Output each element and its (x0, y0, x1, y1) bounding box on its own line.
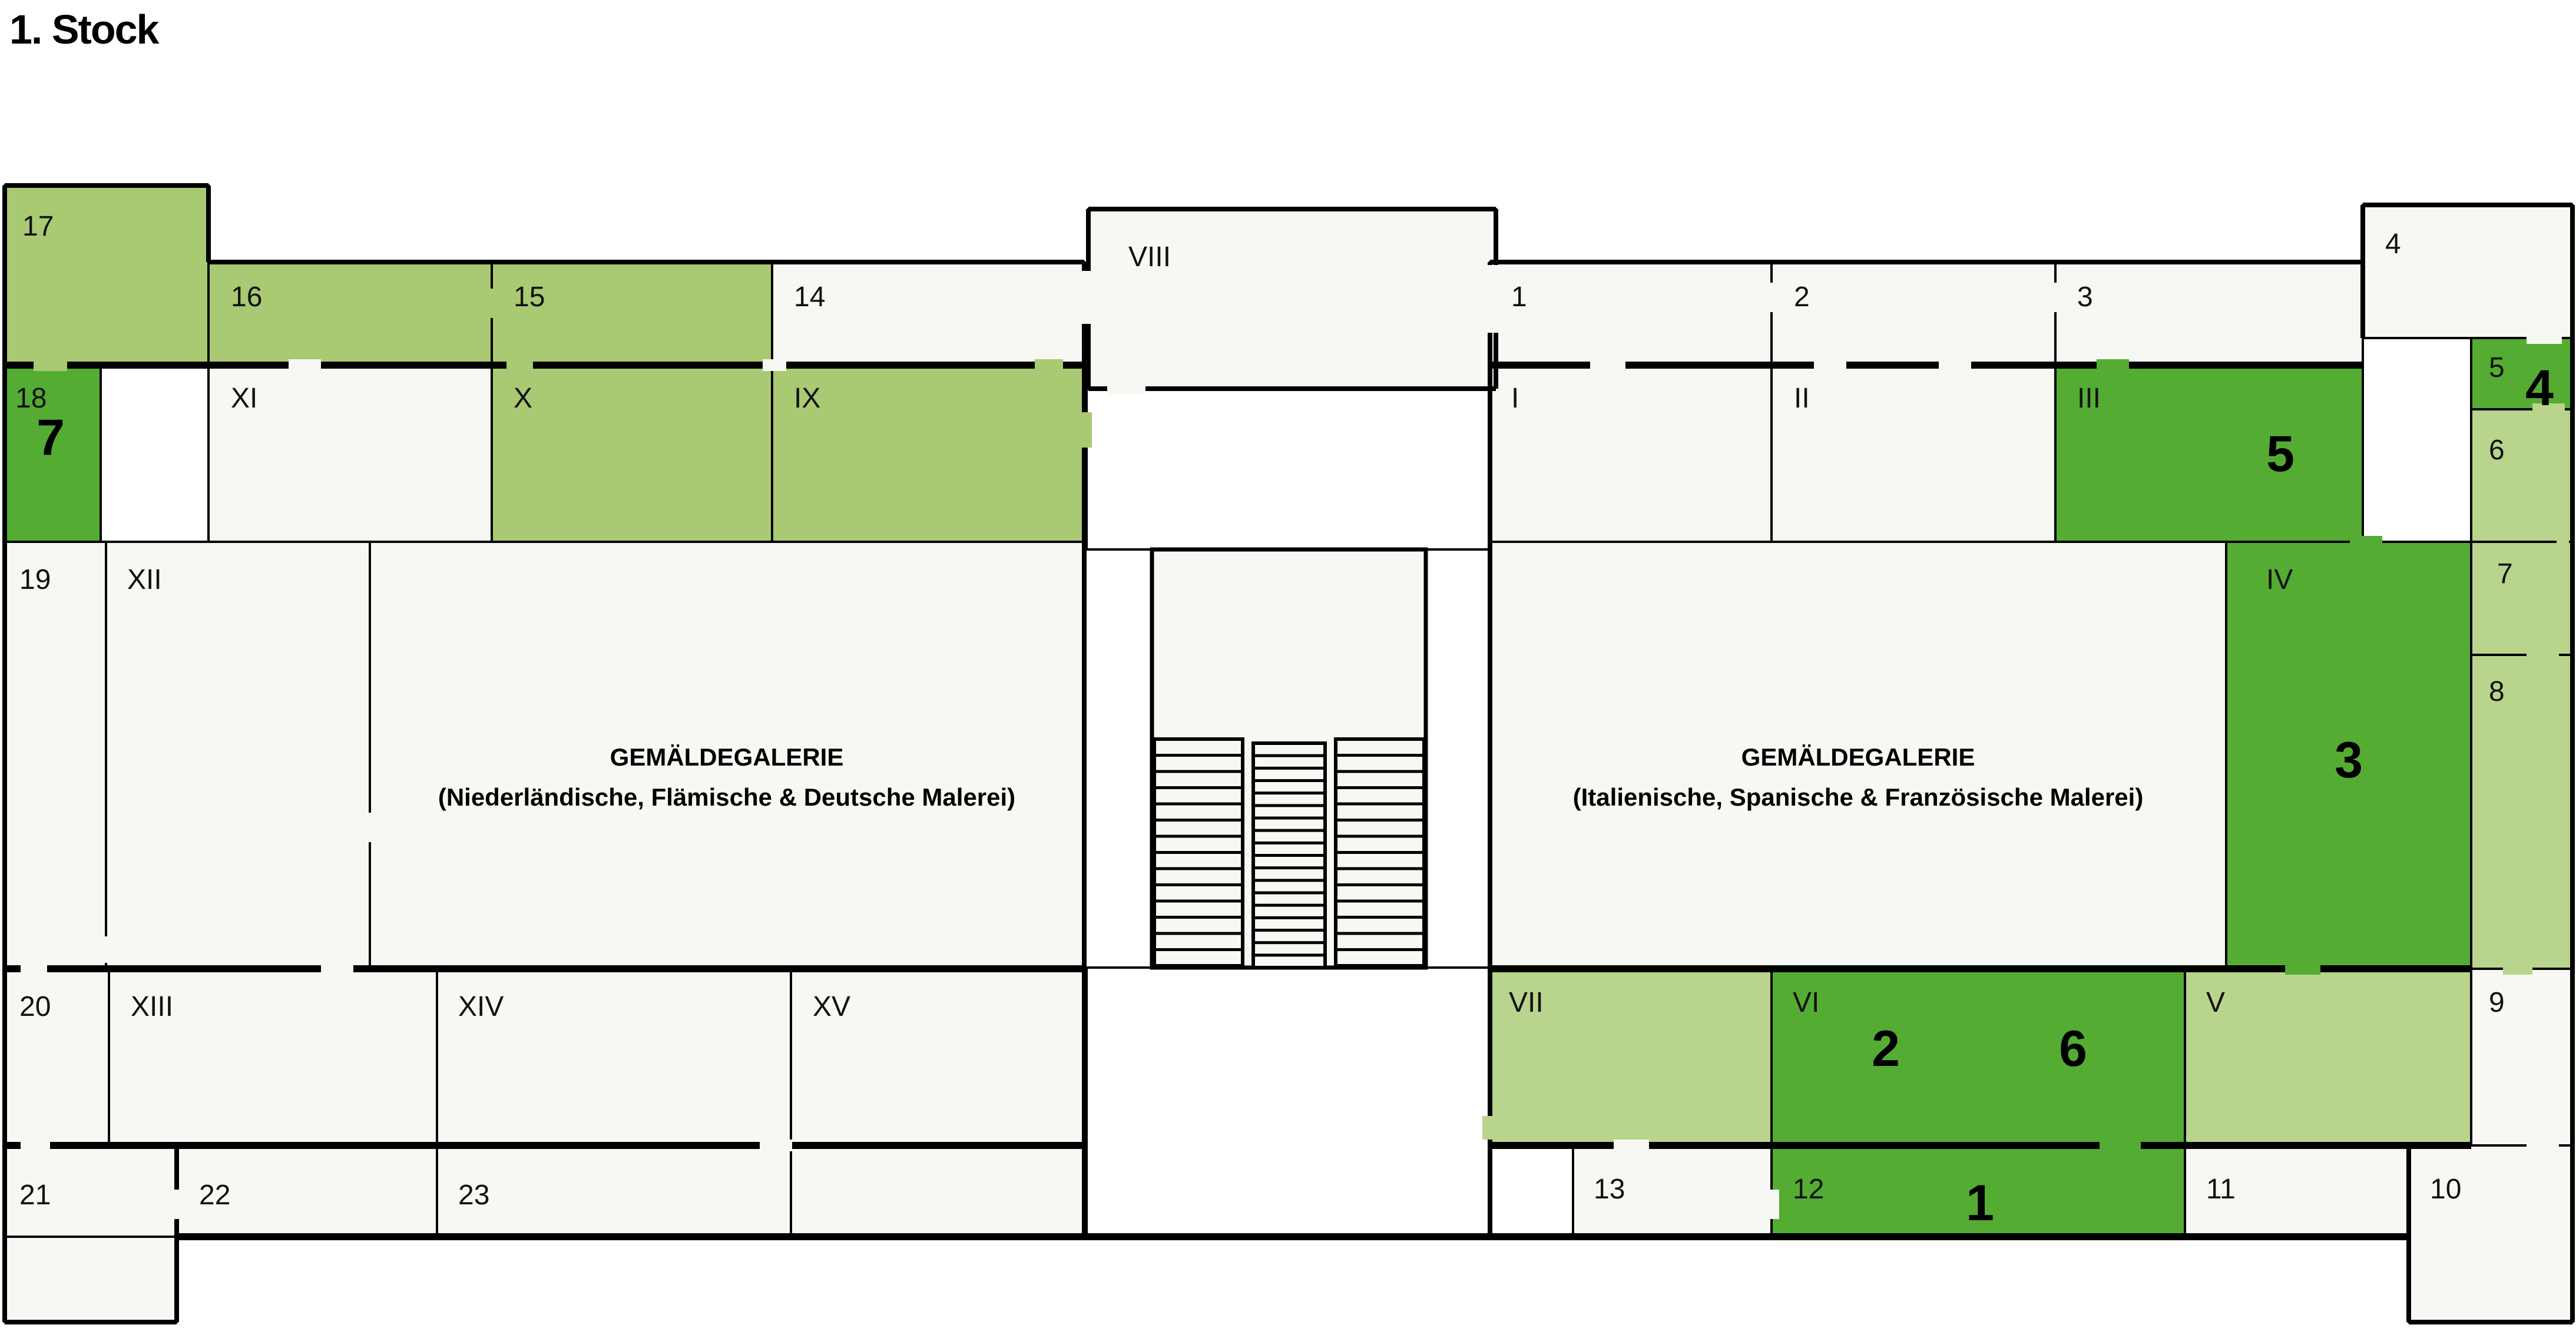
room-19-label: 19 (19, 564, 51, 595)
room-box-bottom-left (5, 1237, 177, 1322)
gallery-left-subtitle: (Niederländische, Flämische & Deutsche M… (438, 783, 1015, 811)
room-13-label: 13 (1594, 1174, 1625, 1205)
room-XIV-label: XIV (458, 991, 504, 1022)
room-2 (1772, 262, 2055, 365)
room-V (2185, 969, 2471, 1145)
room-9-label: 9 (2489, 987, 2505, 1018)
room-III-label: III (2077, 383, 2101, 414)
room-5r-label: 5 (2489, 352, 2505, 383)
room-15 (492, 262, 772, 365)
room-7r (2471, 542, 2572, 655)
room-11-label: 11 (2206, 1174, 2236, 1205)
room-I (1490, 365, 1772, 542)
room-12-label: 12 (1793, 1174, 1824, 1205)
room-row2-gap-right (2363, 338, 2471, 542)
room-19 (5, 542, 106, 969)
highlight-number-2: 2 (1872, 1021, 1900, 1077)
room-XIII-label: XIII (131, 991, 173, 1022)
room-2-label: 2 (1794, 282, 1810, 313)
gallery-left-title: GEMÄLDEGALERIE (610, 743, 844, 771)
room-VII-label: VII (1509, 987, 1544, 1018)
room-14 (772, 262, 1084, 365)
room-3-label: 3 (2077, 282, 2093, 313)
room-8r-label: 8 (2489, 676, 2505, 707)
gallery-right-subtitle: (Italienische, Spanische & Französische … (1573, 783, 2144, 811)
room-XI-label: XI (231, 383, 257, 414)
room-VIII (1088, 209, 1496, 389)
room-1-label: 1 (1511, 282, 1527, 313)
room-VIII-label: VIII (1128, 241, 1171, 273)
room-7r-label: 7 (2497, 558, 2513, 590)
room-XV-label: XV (813, 991, 850, 1022)
room-XII-label: XII (127, 564, 162, 595)
highlight-number-5: 5 (2266, 426, 2294, 482)
room-6r-label: 6 (2489, 435, 2505, 466)
floor-plan-svg: 17161514187XIXIX19XII20XIIIXIVXV212223VI… (0, 0, 2576, 1328)
room-21-label: 21 (19, 1180, 51, 1211)
room-15-label: 15 (514, 282, 545, 313)
highlight-number-6: 6 (2059, 1021, 2087, 1077)
room-XII (106, 542, 370, 969)
room-14-label: 14 (794, 282, 825, 313)
room-5r (2471, 338, 2572, 409)
room-shaft-mid (1087, 389, 1490, 549)
room-V-label: V (2206, 987, 2225, 1018)
room-6r (2471, 409, 2572, 542)
room-VI-label: VI (1793, 987, 1819, 1018)
room-10 (2409, 1145, 2572, 1322)
room-II-label: II (1794, 383, 1810, 414)
room-16-label: 16 (231, 282, 262, 313)
room-17-label: 17 (22, 211, 54, 242)
room-shaft-low (1087, 968, 1490, 1237)
highlight-number-3: 3 (2335, 732, 2363, 789)
staircase (1152, 549, 1426, 968)
gallery-right-title: GEMÄLDEGALERIE (1741, 743, 1975, 771)
room-VI (1772, 969, 2185, 1145)
room-III (2055, 365, 2363, 542)
room-room-23-right (791, 1145, 1084, 1237)
room-IV-label: IV (2266, 564, 2293, 595)
room-23 (437, 1145, 791, 1237)
highlight-number-7: 7 (37, 409, 65, 466)
room-23-label: 23 (458, 1180, 489, 1211)
room-3 (2055, 262, 2363, 365)
room-II (1772, 365, 2055, 542)
room-9 (2471, 969, 2572, 1145)
floor-plan: 1. Stock 17161514187XIXIX19XII20XIIIXIVX… (0, 0, 2576, 1328)
room-16 (208, 262, 492, 365)
room-row5-gap (1490, 1145, 1573, 1237)
room-row2-gap-left (101, 365, 208, 542)
highlight-number-4: 4 (2525, 360, 2554, 416)
room-X (492, 365, 772, 542)
room-4-label: 4 (2385, 228, 2401, 260)
room-X-label: X (514, 383, 532, 414)
room-20-label: 20 (19, 991, 51, 1022)
room-8r (2471, 655, 2572, 969)
highlight-number-1: 1 (1966, 1175, 1994, 1231)
room-4 (2363, 205, 2572, 338)
room-I-label: I (1511, 383, 1519, 414)
room-22-label: 22 (199, 1180, 230, 1211)
room-IX-label: IX (794, 383, 820, 414)
room-10-label: 10 (2430, 1174, 2461, 1205)
room-1 (1490, 262, 1772, 365)
